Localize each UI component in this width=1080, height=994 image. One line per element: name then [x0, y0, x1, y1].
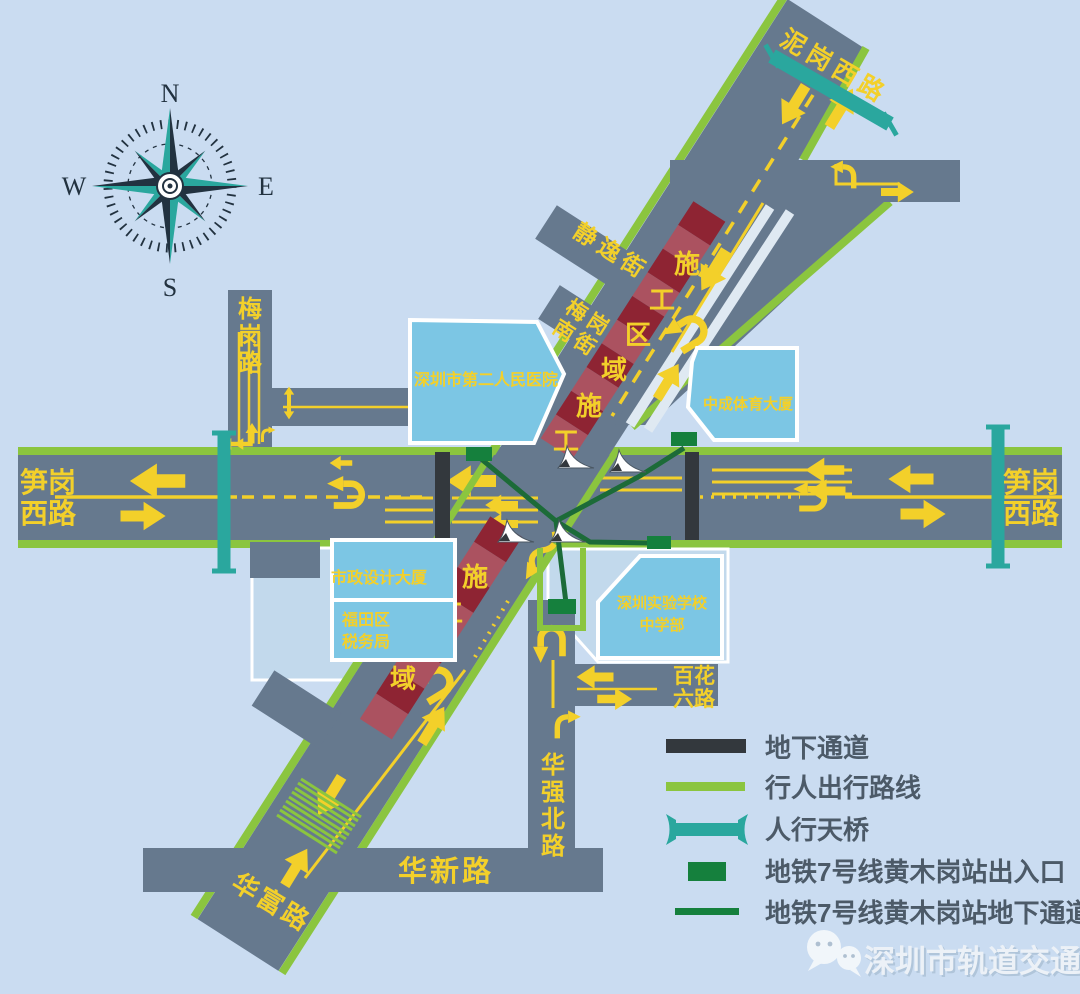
construction-char: 施	[462, 562, 488, 592]
building-label-municipal-design: 市政设计大厦	[331, 568, 428, 587]
underpass-swatch	[666, 739, 746, 753]
legend-label: 地下通道	[765, 733, 869, 763]
road-northeast-branch	[670, 160, 960, 202]
metro-exit	[548, 599, 576, 614]
metro-exit-swatch	[688, 862, 726, 881]
construction-char: 施	[576, 391, 602, 421]
road-label-huaxin: 华新路	[398, 855, 494, 888]
building-zhongcheng-sports	[688, 348, 797, 440]
watermark-text: 深圳市轨道交通	[864, 944, 1080, 979]
compass-west-label: W	[62, 172, 87, 201]
road-label-meigang-char: 路	[238, 349, 263, 377]
map-canvas: 施 工 区 域 施 工 施 工 区 域	[0, 0, 1080, 994]
compass-east-label: E	[258, 172, 274, 201]
road-label-huaqiang-north: 华 强 北 路	[541, 751, 566, 860]
road-label-huaqiang-char: 路	[541, 832, 566, 860]
road-label-baihua: 六路	[673, 687, 716, 711]
traffic-map: 施 工 区 域 施 工 施 工 区 域	[0, 0, 1080, 994]
road-label-sungang-west-e: 西路	[1003, 498, 1060, 529]
road-label-huaqiang-char: 北	[541, 806, 565, 833]
compass-north-label: N	[161, 79, 180, 108]
road-label-huaqiang-char: 华	[541, 751, 565, 779]
building-label-shiyan-school: 中学部	[639, 616, 684, 634]
road-label-meigang-char: 岗	[238, 323, 262, 350]
building-label-shiyan-school: 深圳实验学校	[617, 594, 708, 612]
construction-char: 施	[674, 249, 700, 279]
road-label-meigang: 梅 岗 路	[238, 296, 263, 377]
building-label-hospital: 深圳市第二人民医院	[414, 370, 558, 389]
construction-char: 域	[601, 355, 627, 385]
metro-exit	[466, 447, 492, 461]
footbridge-swatch	[676, 823, 738, 836]
road-huaxin	[143, 848, 603, 892]
metro-underpass-swatch	[675, 908, 739, 915]
legend-label: 人行天桥	[765, 815, 870, 845]
underpass-bar	[435, 452, 450, 540]
metro-exit	[647, 536, 671, 549]
metro-exit	[671, 432, 697, 446]
legend-label: 地铁7号线黄木岗站地下通道	[765, 898, 1080, 928]
compass-hub-dot	[168, 184, 173, 189]
construction-char: 工	[649, 285, 675, 315]
road-driveway	[250, 542, 320, 578]
building-label-futian-tax: 福田区	[341, 610, 390, 629]
building-label-futian-tax: 税务局	[342, 632, 390, 651]
road-label-huaqiang-char: 强	[541, 779, 565, 806]
building-futian-tax	[332, 600, 455, 660]
road-label-sungang-west-e: 笋岗	[1003, 466, 1059, 498]
legend-label: 行人出行路线	[764, 773, 921, 803]
road-label-meigang-char: 梅	[238, 296, 262, 323]
road-label-sungang-west-w: 笋岗	[20, 466, 76, 498]
road-label-baihua: 百花	[673, 664, 715, 688]
route-swatch	[666, 782, 745, 791]
legend-label: 地铁7号线黄木岗站出入口	[765, 857, 1065, 887]
compass-south-label: S	[163, 273, 177, 302]
building-label-zhongcheng: 中成体育大厦	[703, 395, 794, 413]
construction-char: 区	[625, 320, 651, 350]
road-label-sungang-west-w: 西路	[20, 498, 77, 529]
construction-char: 域	[390, 664, 416, 694]
underpass-bar	[685, 452, 699, 540]
